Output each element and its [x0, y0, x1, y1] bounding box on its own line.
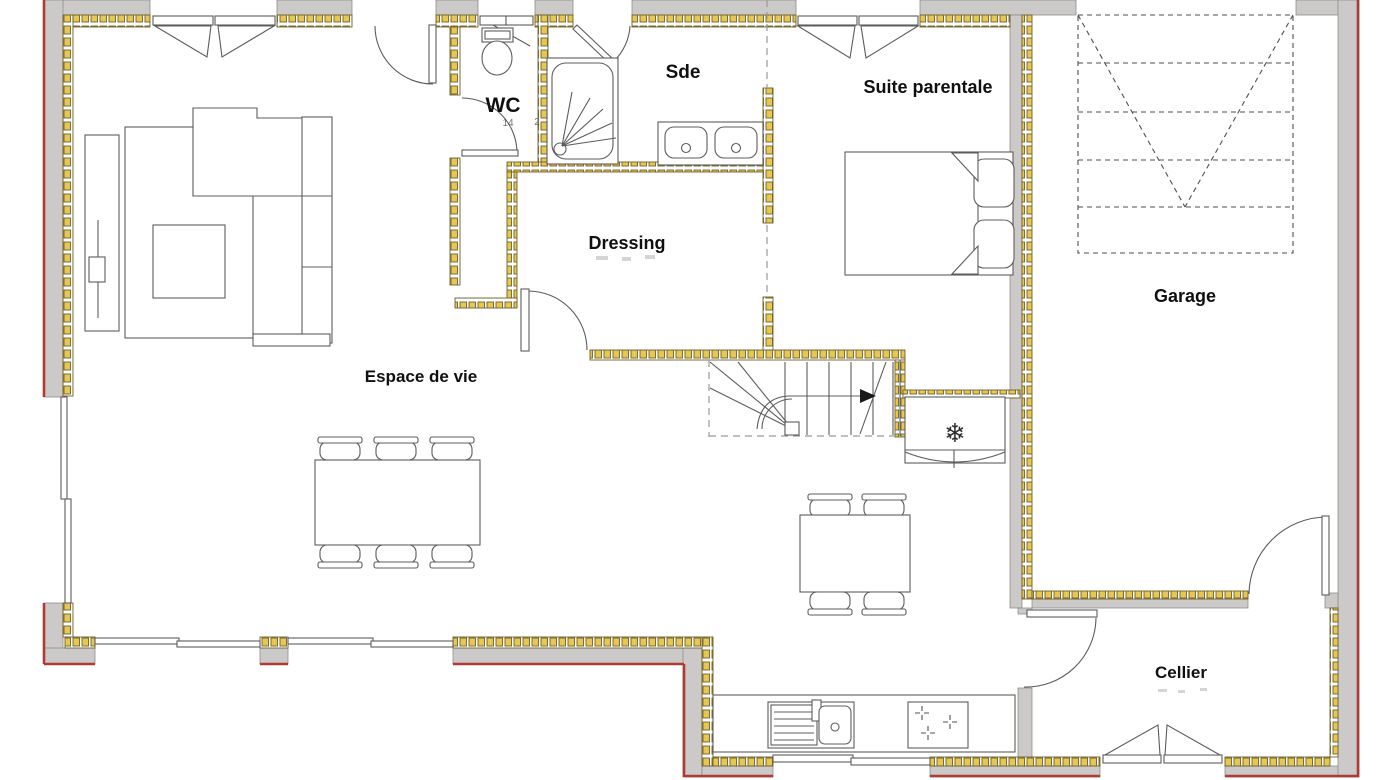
window-suite-parentale	[798, 16, 918, 58]
coffee-table	[153, 225, 225, 298]
room-label-wc: WC	[486, 94, 521, 117]
door-hallway	[521, 289, 587, 351]
window-bottom-sliding-bay-2	[288, 638, 453, 647]
cooktop	[908, 702, 968, 748]
snowflake-icon: ❄	[944, 419, 966, 449]
wc-dim-note-left: 14	[502, 118, 514, 129]
erased-text-remnants	[596, 255, 1207, 693]
room-label-garage: Garage	[1154, 286, 1216, 306]
window-living-top	[153, 16, 275, 57]
double-bed	[845, 152, 1014, 275]
floor-plan-page: ❄ WC 14 2 Sde Suite parentale Dressing E…	[0, 0, 1400, 780]
room-label-espace-de-vie: Espace de vie	[365, 367, 477, 386]
window-cellier	[1103, 725, 1222, 763]
staircase	[709, 360, 900, 437]
tv-unit	[85, 135, 119, 331]
door-cellier-kitchen	[1024, 610, 1097, 687]
dining-table-set	[315, 437, 480, 568]
window-left-sliding-bay	[61, 397, 71, 603]
small-table-set	[800, 494, 910, 615]
floor-plan-canvas: ❄ WC 14 2 Sde Suite parentale Dressing E…	[0, 0, 1400, 780]
door-garage-cellier	[1249, 516, 1329, 595]
room-label-suite-parentale: Suite parentale	[863, 77, 992, 97]
wc-dim-note-right: 2	[534, 117, 540, 128]
shower-tray	[547, 58, 618, 164]
window-kitchen	[773, 755, 930, 765]
toilet	[482, 28, 513, 75]
room-label-cellier: Cellier	[1155, 663, 1207, 682]
room-label-dressing: Dressing	[588, 233, 665, 253]
window-bottom-sliding-bay-1	[95, 638, 260, 647]
door-entrance	[375, 25, 436, 84]
double-sink-vanity	[658, 122, 763, 165]
fridge: ❄	[905, 397, 1005, 468]
kitchen-sink	[768, 700, 854, 748]
kitchen-counter	[713, 695, 1015, 752]
room-label-sde: Sde	[666, 62, 701, 83]
garage-door	[1078, 15, 1293, 253]
